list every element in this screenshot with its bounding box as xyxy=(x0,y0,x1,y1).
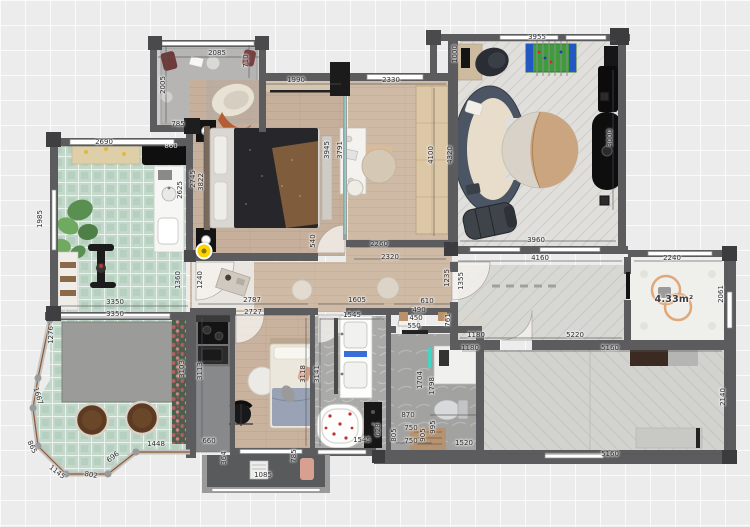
floorplan-drawing xyxy=(0,0,750,527)
dim-balcony2-left: 364 xyxy=(220,451,228,464)
speaker-top xyxy=(600,92,609,101)
dim-entry-b: 1240 xyxy=(196,271,204,289)
dim-gym-right: 2745 xyxy=(189,170,197,188)
towel-blue xyxy=(344,351,367,357)
dim-corridor-left-b: 1355 xyxy=(457,272,465,290)
dim-br2-top-b: 2727 xyxy=(244,308,262,316)
br2-pillow xyxy=(274,347,310,359)
dim-study-left-b: 3791 xyxy=(336,141,344,159)
dim-study-540: 540 xyxy=(309,234,317,247)
dim-wc-750b: 750 xyxy=(404,437,417,445)
dim-wc-top-b: 490 xyxy=(412,306,425,314)
dim-wc-top-d: 550 xyxy=(407,322,420,330)
dim-wc-628: 628 xyxy=(374,423,382,436)
dim-hall-1180a: 1180 xyxy=(467,331,485,339)
camera-position-marker[interactable] xyxy=(196,243,213,260)
dim-game-bottom: 3960 xyxy=(527,236,545,244)
dim-corridor-left-a: 1235 xyxy=(443,269,451,287)
dim-wc-995: 995 xyxy=(429,420,437,433)
right-room-door-leaf xyxy=(626,272,630,299)
low-rug xyxy=(636,428,702,448)
dim-gym-counter: 2625 xyxy=(176,181,184,199)
dim-bath-top-b: 1545 xyxy=(343,311,361,319)
glass-accent xyxy=(428,348,431,368)
round-rug-study xyxy=(362,149,396,183)
dim-wc-top-a: 610 xyxy=(420,297,433,305)
dim-balcony2-right: 785 xyxy=(290,449,298,462)
br2-headboard xyxy=(270,338,314,344)
foosball-table xyxy=(526,40,576,76)
dim-game-top: 3955 xyxy=(528,33,546,41)
dim-wc-905: 905 xyxy=(419,428,427,441)
sink-1 xyxy=(344,322,367,348)
counter-item xyxy=(158,170,172,180)
tv-screen xyxy=(270,90,330,93)
dim-wc-va: 1704 xyxy=(416,371,424,389)
hall-rug-2 xyxy=(377,277,399,299)
balcony-chair xyxy=(300,458,314,480)
hall-rug-1 xyxy=(292,280,312,300)
dim-corridor-761: 761 xyxy=(444,313,452,326)
dim-balcony-bottom: 785 xyxy=(171,120,184,128)
console-knob xyxy=(602,146,612,156)
dim-terrace-left: 1276 xyxy=(47,326,55,344)
toilet-bowl xyxy=(434,400,460,420)
pillow-1 xyxy=(214,136,227,174)
wc-counter-item xyxy=(439,350,449,366)
round-cushion xyxy=(206,56,220,70)
dim-wc-870: 870 xyxy=(401,411,414,419)
pc-tower xyxy=(461,48,470,68)
dim-living-top: 1990 xyxy=(287,76,305,84)
dim-terrace-top: 3350 xyxy=(106,310,124,318)
dim-brr-top: 5160 xyxy=(601,344,619,352)
dim-balcony-top: 2085 xyxy=(208,49,226,57)
kitchen-sink xyxy=(202,349,222,361)
pillow-2 xyxy=(214,182,227,220)
sink-2 xyxy=(344,362,367,388)
dim-shower-bottom: 1520 xyxy=(455,439,473,447)
dim-gym-top: 2690 xyxy=(95,138,113,146)
cooktop xyxy=(198,322,228,344)
dim-br2-right: 3118 xyxy=(299,365,307,383)
dark-leaf xyxy=(696,428,700,448)
rug-terrace xyxy=(62,322,172,402)
dim-balcony2-bottom: 1085 xyxy=(254,471,272,479)
dim-study-bottom-b: 2320 xyxy=(381,253,399,261)
dim-study-left-a: 3945 xyxy=(323,141,331,159)
dim-study-top: 2330 xyxy=(382,76,400,84)
dim-study-right: 4100 xyxy=(427,146,435,164)
dim-balcony-right: 710 xyxy=(242,54,250,67)
dim-bath-left: 3141 xyxy=(313,365,321,383)
speaker-bottom xyxy=(600,196,609,205)
dark-cabinet xyxy=(630,349,668,366)
dim-wc-750a: 750 xyxy=(404,424,417,432)
dim-wc-top-c: 450 xyxy=(409,314,422,322)
dim-br2-top-a: 2787 xyxy=(243,296,261,304)
dim-gym-tv: 860 xyxy=(164,142,177,150)
chair-study xyxy=(347,180,363,196)
dim-rightroom-top: 2240 xyxy=(663,254,681,262)
toilet-tank xyxy=(458,400,468,419)
gray-panel xyxy=(668,349,698,366)
dim-bath-top-a: 1605 xyxy=(348,296,366,304)
dim-terrace-1448: 1448 xyxy=(147,440,165,448)
dim-game-inner: 4320 xyxy=(446,146,454,164)
dim-wc-805: 805 xyxy=(390,428,398,441)
dim-brr-right: 2140 xyxy=(719,388,727,406)
dim-gym-left: 1985 xyxy=(36,210,44,228)
dim-game-right: 3000 xyxy=(606,129,614,147)
dim-corridor-top: 4160 xyxy=(531,254,549,262)
mirror xyxy=(334,318,338,394)
dim-kitchen-660: 660 xyxy=(202,437,215,445)
dim-hall-1180b: 1180 xyxy=(461,344,479,352)
faucet-gym xyxy=(168,187,171,190)
dim-rightroom-right: 2061 xyxy=(717,285,725,303)
tv-wall xyxy=(598,66,618,112)
dim-master-left: 3822 xyxy=(197,173,205,191)
laundry-tub xyxy=(158,218,178,244)
dim-gym-bottom: 3350 xyxy=(106,298,124,306)
floorplan-canvas: 2085 2005 710 785 1990 2330 3955 1000 30… xyxy=(0,0,750,527)
dim-terrace-right: 3103 xyxy=(178,360,186,378)
dim-bath-bottom: 1545 xyxy=(353,436,371,444)
cabinet-corner xyxy=(604,46,620,68)
dim-corridor-bottom: 5220 xyxy=(566,331,584,339)
dim-brr-bottom: 5160 xyxy=(601,450,619,458)
label-area-rightroom: 4.33m² xyxy=(655,296,694,304)
furniture-kitchen xyxy=(196,312,230,452)
dim-entry-a: 1360 xyxy=(174,271,182,289)
dim-balcony-left: 2005 xyxy=(159,76,167,94)
dim-game-left: 1000 xyxy=(451,45,459,63)
dim-wc-vb: 1798 xyxy=(428,377,436,395)
dim-kitchen-v: 3113 xyxy=(196,362,204,380)
dim-study-bottom-a: 2260 xyxy=(370,240,388,248)
